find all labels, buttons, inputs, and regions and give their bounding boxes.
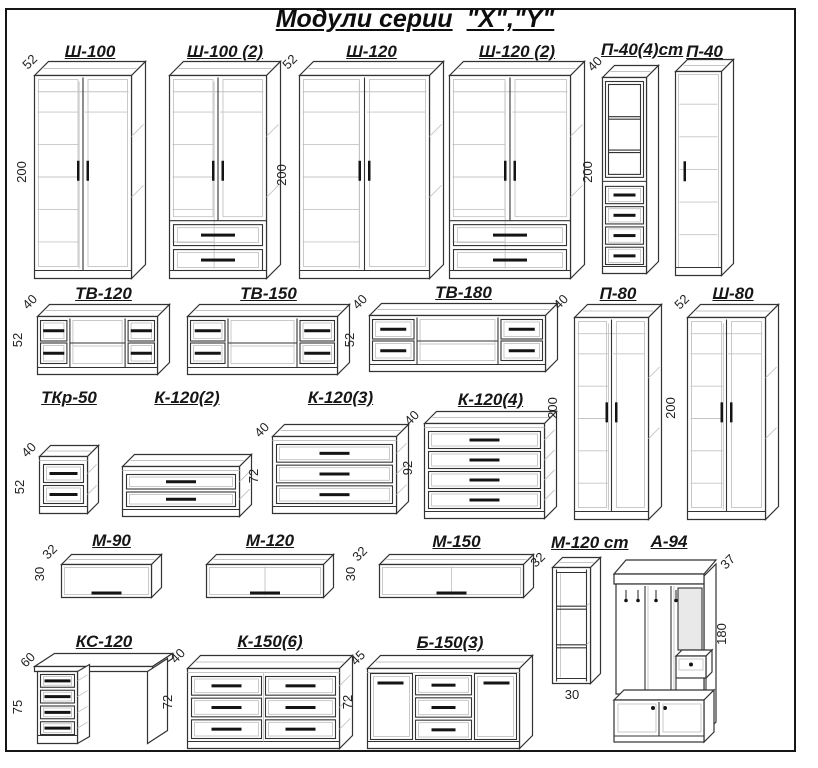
wardrobe-drawing — [33, 60, 147, 280]
module-label: К-150(6) — [186, 634, 354, 650]
tv-stand-drawing — [186, 303, 351, 376]
wardrobe-drawing — [448, 60, 586, 280]
desk-drawing — [33, 652, 175, 752]
dim-height: 200 — [581, 152, 595, 192]
dim-height: 180 — [715, 614, 729, 654]
module-label: М-90 — [60, 533, 163, 549]
dim-height: 200 — [664, 388, 678, 428]
dim-height: 52 — [13, 467, 27, 507]
dim-height: 92 — [401, 448, 415, 488]
module-label: М-150 — [378, 534, 535, 550]
dim-height: 72 — [161, 682, 175, 722]
tall-cabinet-drawing — [573, 303, 663, 521]
module-label: М-120 ст — [551, 535, 602, 551]
wardrobe-drawing — [298, 60, 445, 280]
single-door-cabinet-drawing — [674, 58, 735, 277]
tv-stand-drawing — [368, 302, 559, 373]
dim-height: 200 — [275, 155, 289, 195]
chest-drawing — [271, 423, 410, 515]
chest-drawing — [186, 654, 354, 750]
module-label: М-120 — [205, 533, 335, 549]
dim-height: 200 — [546, 388, 560, 428]
hallway-stand-drawing — [612, 552, 726, 752]
module-label: А-94 — [612, 534, 726, 550]
module-label: Ш-120 (2) — [448, 44, 586, 60]
title-series: "X","Y" — [467, 5, 555, 33]
dim-height: 200 — [15, 152, 29, 192]
wall-cabinet-drawing — [378, 553, 535, 599]
module-label: К-120(4) — [423, 392, 558, 408]
module-label: Б-150(3) — [366, 635, 534, 651]
wardrobe-drawing — [168, 60, 282, 280]
module-label: ТКр-50 — [38, 390, 100, 406]
dim-width: 30 — [552, 688, 592, 702]
module-label: ТВ-120 — [36, 286, 171, 302]
module-label: Ш-120 — [298, 44, 445, 60]
wall-cabinet-drawing — [60, 553, 163, 599]
tall-cabinet-drawing — [686, 303, 780, 521]
module-label: ТВ-180 — [368, 285, 559, 301]
sideboard-drawing — [366, 654, 534, 750]
dim-height: 72 — [247, 456, 261, 496]
module-label: К-120(2) — [121, 390, 253, 406]
chest-drawing — [121, 453, 253, 518]
dim-height: 52 — [343, 320, 357, 360]
module-label: ТВ-150 — [186, 286, 351, 302]
bedside-chest-drawing — [38, 444, 100, 515]
title-main: Модули серии — [276, 5, 453, 33]
page-title: Модули серии"X","Y" — [240, 5, 590, 34]
module-label: Ш-100 — [33, 44, 147, 60]
dim-height: 52 — [11, 320, 25, 360]
module-label: П-80 — [573, 286, 663, 302]
dim-height: 30 — [33, 554, 47, 594]
chest-drawing — [423, 410, 558, 520]
module-label: К-120(3) — [271, 390, 410, 406]
module-label: КС-120 — [33, 634, 175, 650]
tv-stand-drawing — [36, 303, 171, 376]
open-shelf-drawing — [551, 556, 602, 685]
dim-height: 75 — [11, 687, 25, 727]
module-label: Ш-100 (2) — [168, 44, 282, 60]
module-label: Ш-80 — [686, 286, 780, 302]
catalog-sheet: Модули серии"X","Y" Ш-100 Ш-100 (2) Ш-12… — [0, 0, 818, 768]
dim-height: 72 — [341, 682, 355, 722]
wall-cabinet-drawing — [205, 553, 335, 599]
display-cabinet-drawing — [601, 64, 660, 275]
dim-height: 30 — [344, 554, 358, 594]
